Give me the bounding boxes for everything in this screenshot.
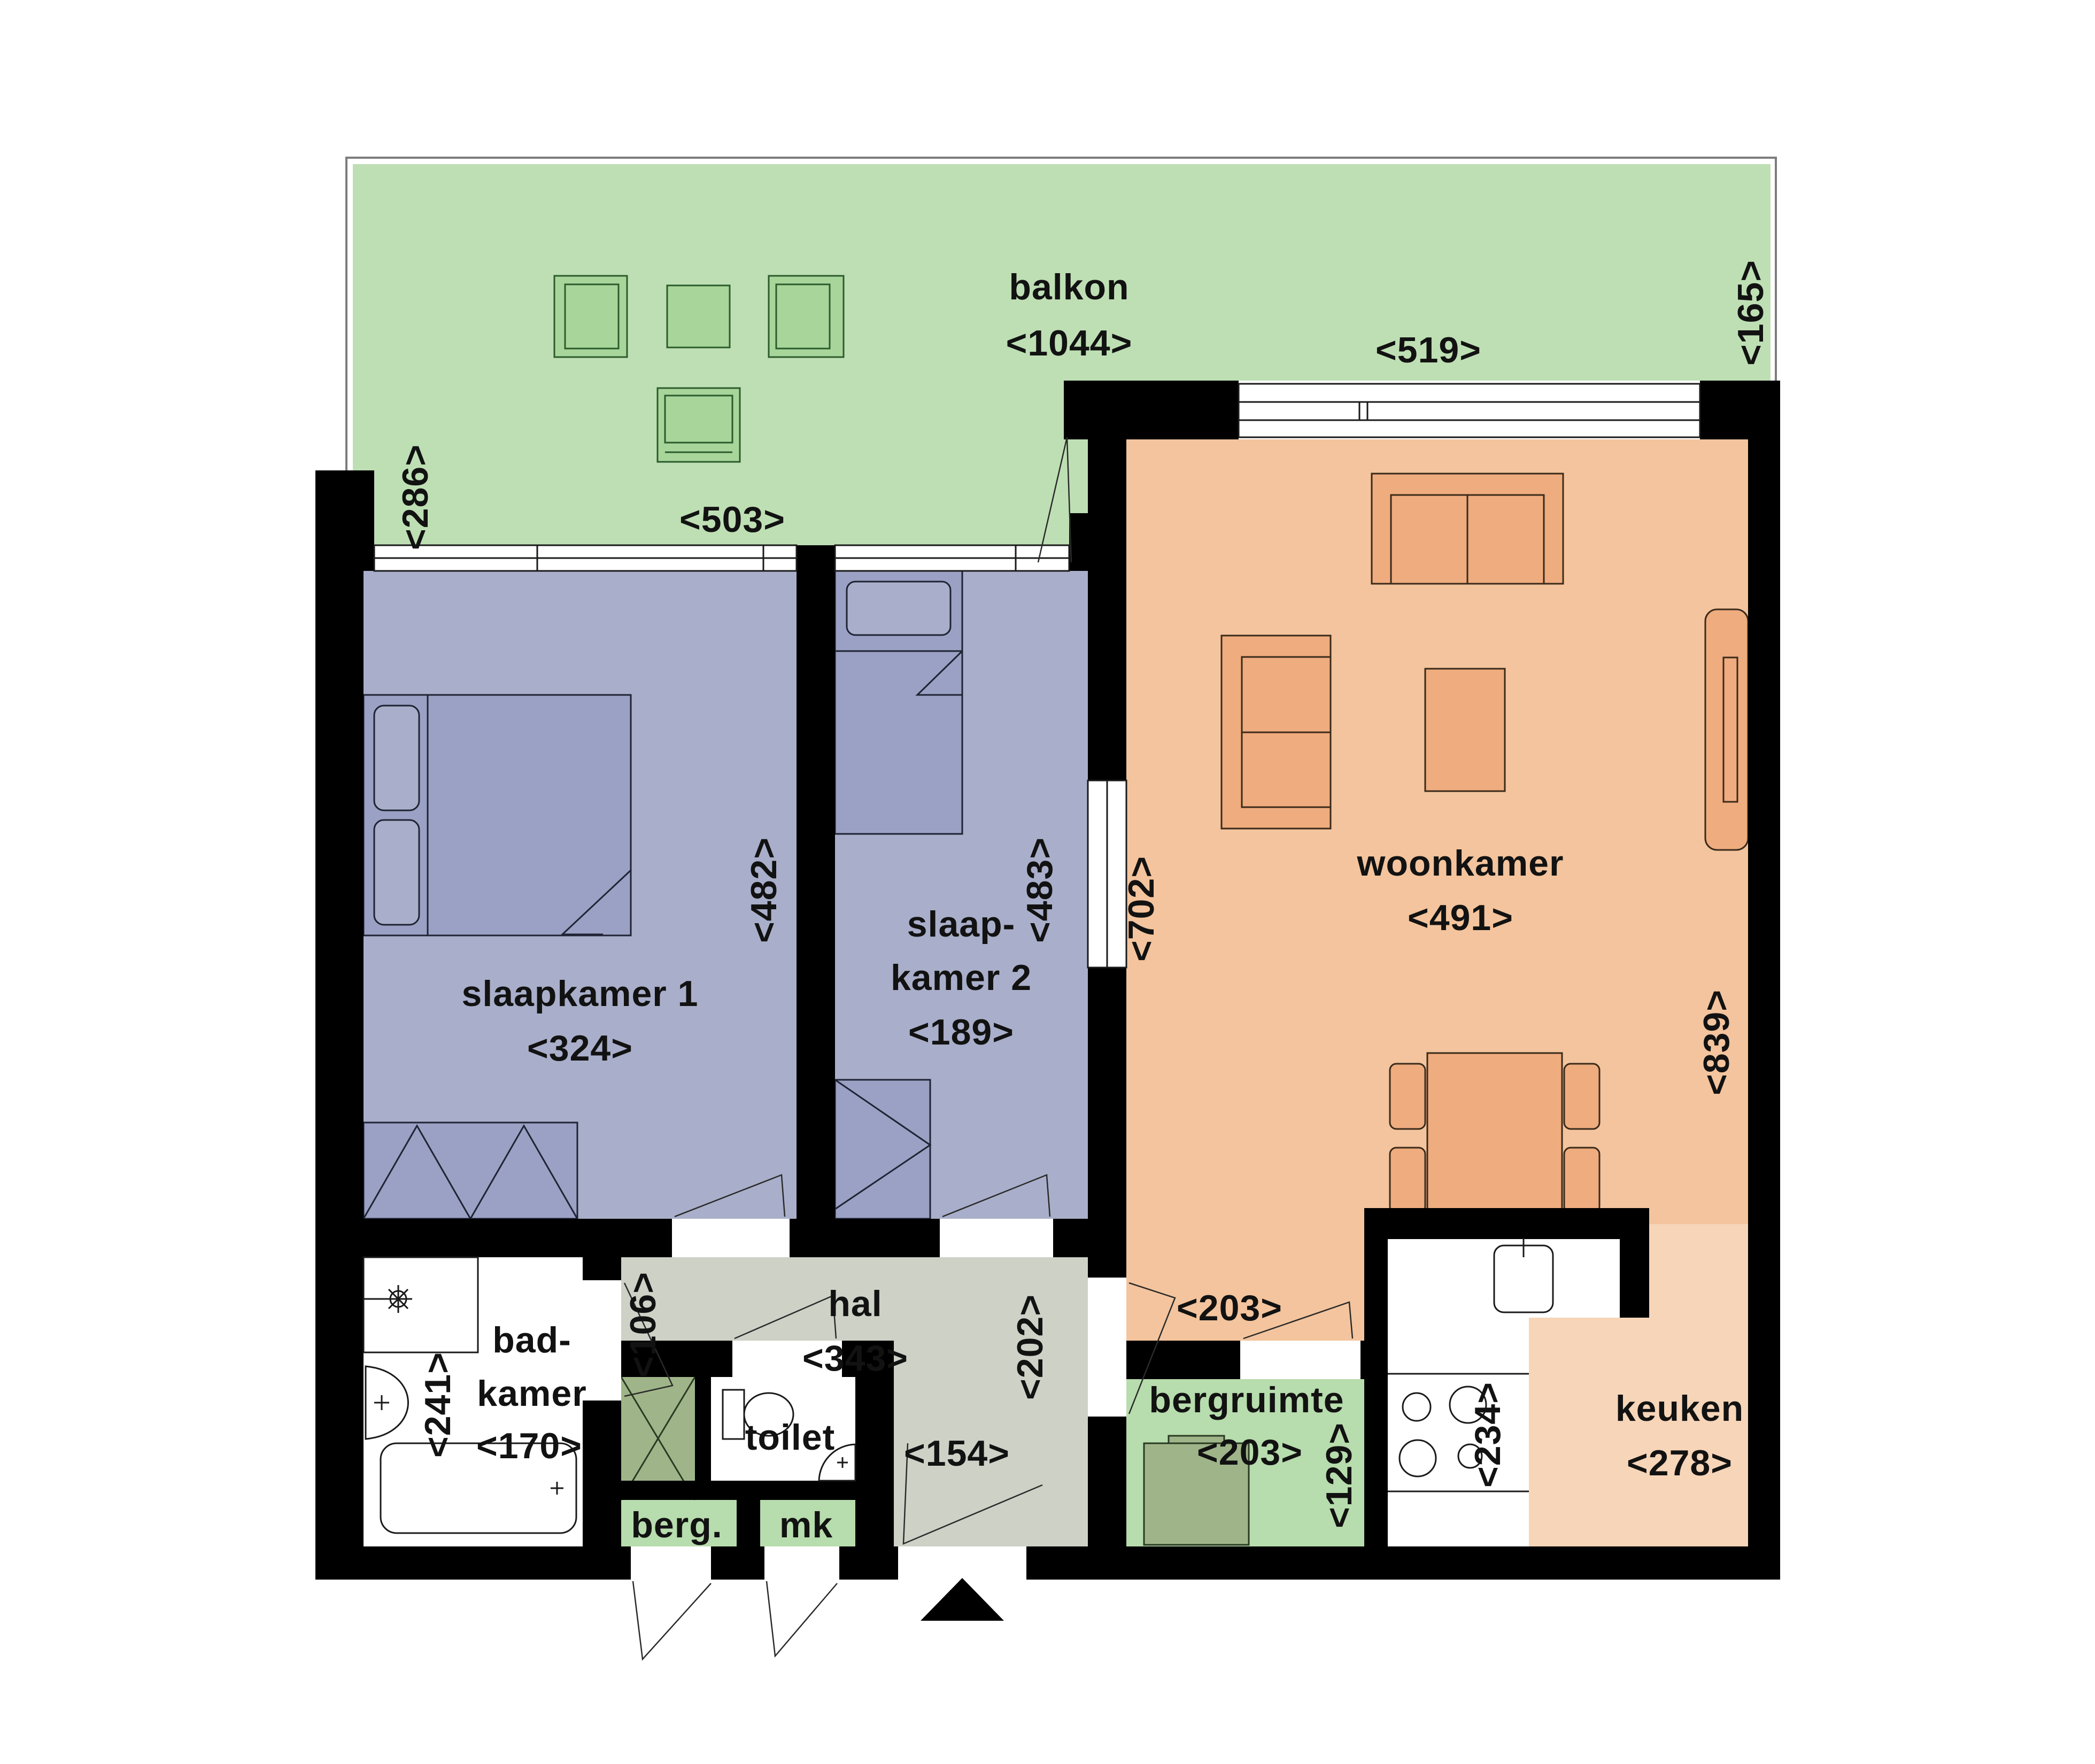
door-gap-bergruimte bbox=[1240, 1341, 1360, 1379]
balcony-chair-left-cushion bbox=[565, 284, 619, 349]
wardrobe-1 bbox=[364, 1123, 577, 1219]
dim-badkamer: <170> bbox=[476, 1426, 582, 1466]
label-bergruimte: bergruimte bbox=[1149, 1380, 1344, 1420]
balcony-table bbox=[667, 285, 730, 347]
dining-chair-2 bbox=[1390, 1148, 1425, 1213]
door-gap-berg bbox=[631, 1546, 711, 1580]
door-gap-entrance bbox=[898, 1546, 1026, 1580]
door-gap-mk bbox=[764, 1546, 839, 1580]
label-balkon: balkon bbox=[1009, 267, 1129, 307]
dining-table bbox=[1427, 1053, 1562, 1224]
door-gap-bedroom1 bbox=[672, 1219, 790, 1257]
dim-livingroom-window: <519> bbox=[1375, 330, 1481, 370]
balcony-chair-right-cushion bbox=[776, 284, 830, 349]
door-gap-bedroom2 bbox=[940, 1219, 1053, 1257]
wall-kitchen-left bbox=[1364, 1239, 1388, 1546]
label-hal: hal bbox=[828, 1283, 882, 1324]
label-slaapkamer2-line1: slaap- bbox=[907, 904, 1016, 945]
dim-livingroom-left: <702> bbox=[1121, 856, 1162, 962]
label-slaapkamer2-line2: kamer 2 bbox=[891, 957, 1032, 998]
dining-chair-1 bbox=[1390, 1064, 1425, 1129]
dim-keuken: <278> bbox=[1627, 1443, 1733, 1483]
label-woonkamer: woonkamer bbox=[1357, 843, 1564, 884]
wall-left bbox=[315, 545, 364, 1580]
window-livingroom bbox=[1239, 384, 1700, 437]
tv-cabinet-inner bbox=[1723, 657, 1737, 802]
bed-double-pillow-1 bbox=[374, 706, 419, 810]
dining-chair-3 bbox=[1564, 1064, 1599, 1129]
dim-hal-bottom: <154> bbox=[904, 1433, 1010, 1474]
wardrobe-2 bbox=[835, 1080, 930, 1219]
dim-balkon-right: <165> bbox=[1730, 260, 1771, 366]
balcony-chair-bottom-cushion bbox=[665, 396, 732, 443]
floorplan-page: balkon <1044> <286> <165> <519> <503> sl… bbox=[0, 0, 2095, 1764]
dim-bergruimte-depth: <129> bbox=[1319, 1422, 1359, 1528]
dim-balkon: <1044> bbox=[1006, 323, 1133, 363]
label-badkamer-line2: kamer bbox=[477, 1373, 586, 1414]
door-swing-mk-outside bbox=[767, 1581, 837, 1656]
dim-hal: <343> bbox=[802, 1338, 908, 1379]
door-swing-berg-outside bbox=[633, 1581, 711, 1659]
dim-balkon-left: <286> bbox=[395, 444, 436, 550]
label-slaapkamer1: slaapkamer 1 bbox=[462, 973, 699, 1014]
dim-woonkamer-bottom: <203> bbox=[1177, 1288, 1282, 1328]
dim-keuken-left: <234> bbox=[1467, 1382, 1508, 1488]
label-badkamer-line1: bad- bbox=[492, 1320, 571, 1360]
dim-balkon-bottom: <503> bbox=[679, 499, 785, 540]
dim-slaapkamer2: <189> bbox=[908, 1012, 1014, 1053]
floorplan-canvas: balkon <1044> <286> <165> <519> <503> sl… bbox=[0, 0, 2095, 1764]
label-mk: mk bbox=[779, 1505, 833, 1545]
dim-livingroom-right: <839> bbox=[1696, 989, 1737, 1095]
wall-kitchen-top bbox=[1364, 1208, 1649, 1239]
wall-bottom bbox=[315, 1546, 1780, 1580]
bed-double-pillow-2 bbox=[374, 820, 419, 925]
dim-slaapkamer2-depth: <483> bbox=[1019, 837, 1060, 943]
wall-berg-mk-divider bbox=[737, 1500, 760, 1546]
dim-woonkamer: <491> bbox=[1408, 898, 1513, 938]
wall-livingroom-top-left bbox=[1064, 381, 1239, 439]
wall-right bbox=[1748, 381, 1780, 1580]
label-berg: berg. bbox=[631, 1505, 722, 1545]
entrance-arrow-icon bbox=[921, 1578, 1004, 1621]
coffee-table bbox=[1425, 669, 1505, 791]
dim-slaapkamer1: <324> bbox=[527, 1028, 633, 1069]
wall-bedroom-divider bbox=[797, 545, 835, 1257]
door-gap-bathroom bbox=[583, 1280, 621, 1401]
dim-bathroom-door: <106> bbox=[623, 1272, 663, 1378]
dining-chair-4 bbox=[1564, 1148, 1599, 1213]
door-gap-hall-livingroom bbox=[1088, 1278, 1126, 1417]
dim-slaapkamer1-depth: <482> bbox=[744, 837, 784, 943]
bed-single-pillow bbox=[847, 582, 950, 635]
label-keuken: keuken bbox=[1615, 1388, 1744, 1429]
dim-hal-right: <202> bbox=[1010, 1294, 1050, 1400]
balcony-floor-left bbox=[353, 164, 1088, 545]
label-toilet: toilet bbox=[745, 1417, 835, 1458]
dim-badkamer-depth: <241> bbox=[418, 1352, 458, 1458]
wall-kitchen-right-stub bbox=[1620, 1208, 1649, 1318]
dim-bergruimte: <203> bbox=[1197, 1432, 1303, 1473]
wall-toilet-bottom bbox=[621, 1481, 894, 1500]
